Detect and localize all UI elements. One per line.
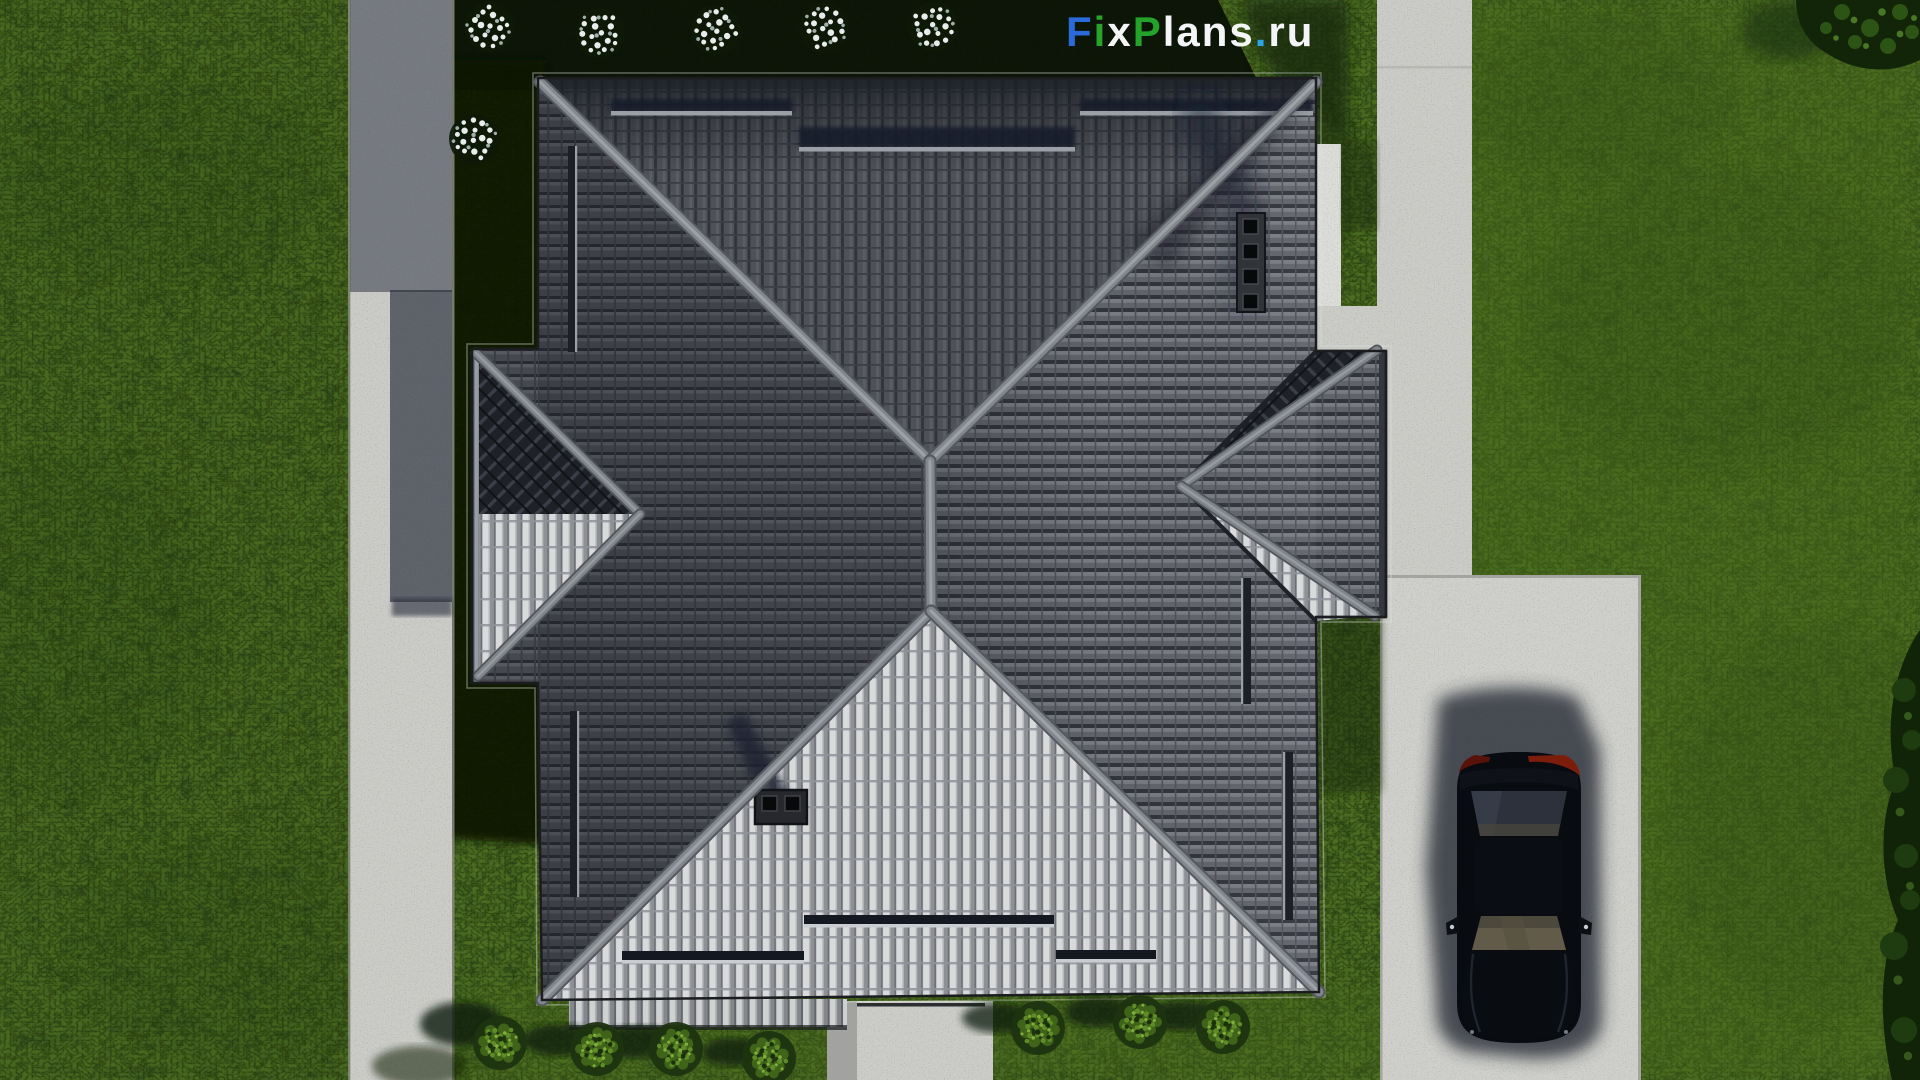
svg-text:FixPlans.ru: FixPlans.ru: [1066, 8, 1314, 55]
